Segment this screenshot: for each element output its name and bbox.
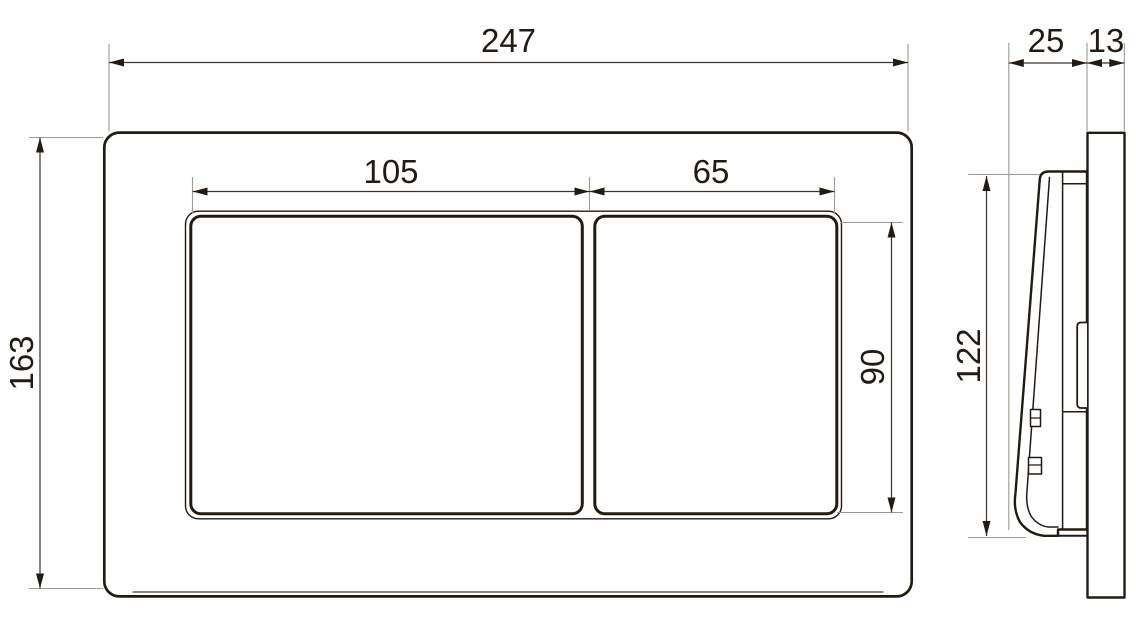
flush-plate-drawing: 247 163 105 65 90 <box>0 0 1136 621</box>
wall-frame-outline <box>1088 133 1125 598</box>
dim-label-plate-depth: 25 <box>1028 22 1065 59</box>
dim-label-plate-width: 247 <box>481 22 536 59</box>
dim-label-frame-thickness: 13 <box>1088 22 1125 59</box>
dim-label-large-button-width: 105 <box>363 153 418 190</box>
mounting-clip-lower <box>1029 458 1042 475</box>
front-view <box>104 133 911 597</box>
dim-label-plate-height: 163 <box>3 335 40 390</box>
pusher-bracket <box>1077 323 1087 409</box>
dim-label-button-height: 90 <box>854 349 891 386</box>
dim-label-small-button-width: 65 <box>693 153 730 190</box>
dim-label-plate-face-height: 122 <box>950 328 987 383</box>
technical-drawing-page: 247 163 105 65 90 <box>0 0 1136 621</box>
small-flush-button <box>595 216 837 514</box>
large-flush-button <box>191 216 583 514</box>
